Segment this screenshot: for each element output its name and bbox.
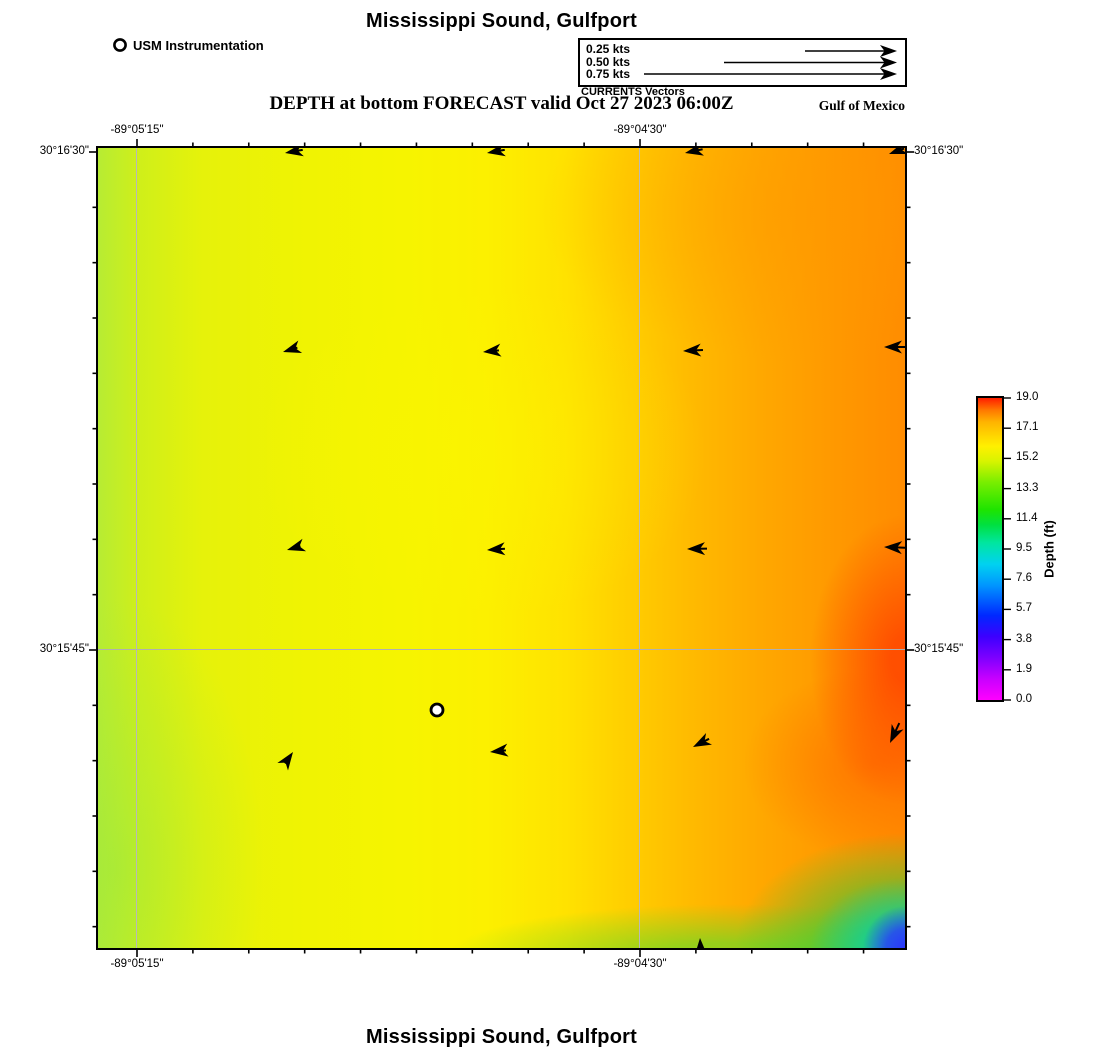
reference-speed-label: 0.25 kts <box>586 43 630 55</box>
current-vector-arrow <box>884 340 905 353</box>
meridian-gridline <box>639 148 640 948</box>
colorbar-axis-label: Depth (ft) <box>1042 520 1057 578</box>
usm-station-marker <box>431 704 443 716</box>
current-vector-arrow <box>883 540 904 554</box>
lat-label-right: 30°16'30" <box>914 145 1004 157</box>
lat-label-left: 30°16'30" <box>0 145 89 157</box>
lat-label-left: 30°15'45" <box>0 643 89 655</box>
page-title: Mississippi Sound, Gulfport <box>98 10 905 33</box>
currents-reference-box: 0.25 kts0.50 kts0.75 kts <box>578 38 907 87</box>
current-vector-arrow <box>482 343 501 358</box>
colorbar-tick-label: 15.2 <box>1016 451 1038 463</box>
parallel-gridline <box>98 649 905 650</box>
meridian-gridline <box>136 148 137 948</box>
colorbar-tick-label: 5.7 <box>1016 602 1032 614</box>
current-vector-arrow <box>277 748 298 770</box>
current-vector-arrow <box>283 148 303 159</box>
current-vector-arrow <box>486 542 505 556</box>
current-vector-arrow <box>884 720 905 745</box>
lon-label-bottom: -89°05'15" <box>77 958 197 970</box>
current-vector-arrow <box>281 340 302 358</box>
depth-colorbar <box>976 396 1004 702</box>
colorbar-tick-label: 3.8 <box>1016 633 1032 645</box>
current-vector-arrow <box>693 937 707 947</box>
reference-arrow <box>644 68 897 80</box>
current-vector-arrow <box>886 148 904 160</box>
forecast-figure: Mississippi Sound, Gulfport USM Instrume… <box>0 0 1100 1050</box>
lon-label-top: -89°05'15" <box>77 124 197 136</box>
usm-legend-label: USM Instrumentation <box>133 38 264 53</box>
current-vector-arrow <box>285 538 306 555</box>
colorbar-tick-label: 11.4 <box>1016 512 1038 524</box>
colorbar-tick-label: 0.0 <box>1016 693 1032 705</box>
colorbar-tick-label: 1.9 <box>1016 663 1032 675</box>
colorbar-tick-label: 13.3 <box>1016 482 1038 494</box>
colorbar-tick-label: 9.5 <box>1016 542 1032 554</box>
usm-station-legend-icon <box>111 36 129 54</box>
current-vector-arrow <box>686 542 706 555</box>
region-label: Gulf of Mexico <box>700 98 905 114</box>
bottom-title: Mississippi Sound, Gulfport <box>98 1026 905 1049</box>
current-vector-field <box>98 148 905 948</box>
current-vector-arrow <box>485 148 505 159</box>
reference-speed-label: 0.75 kts <box>586 68 630 80</box>
current-vector-arrow <box>690 733 712 753</box>
lon-label-top: -89°04'30" <box>580 124 700 136</box>
reference-arrow <box>805 45 897 57</box>
depth-heatmap <box>96 146 907 950</box>
colorbar-tick-label: 19.0 <box>1016 391 1038 403</box>
reference-speed-label: 0.50 kts <box>586 56 630 68</box>
reference-arrow <box>724 57 897 69</box>
current-vector-arrow <box>682 343 703 357</box>
colorbar-tick-label: 7.6 <box>1016 572 1032 584</box>
current-vector-arrow <box>489 743 508 758</box>
current-vector-arrow <box>683 148 703 159</box>
lon-label-bottom: -89°04'30" <box>580 958 700 970</box>
colorbar-tick-label: 17.1 <box>1016 421 1038 433</box>
